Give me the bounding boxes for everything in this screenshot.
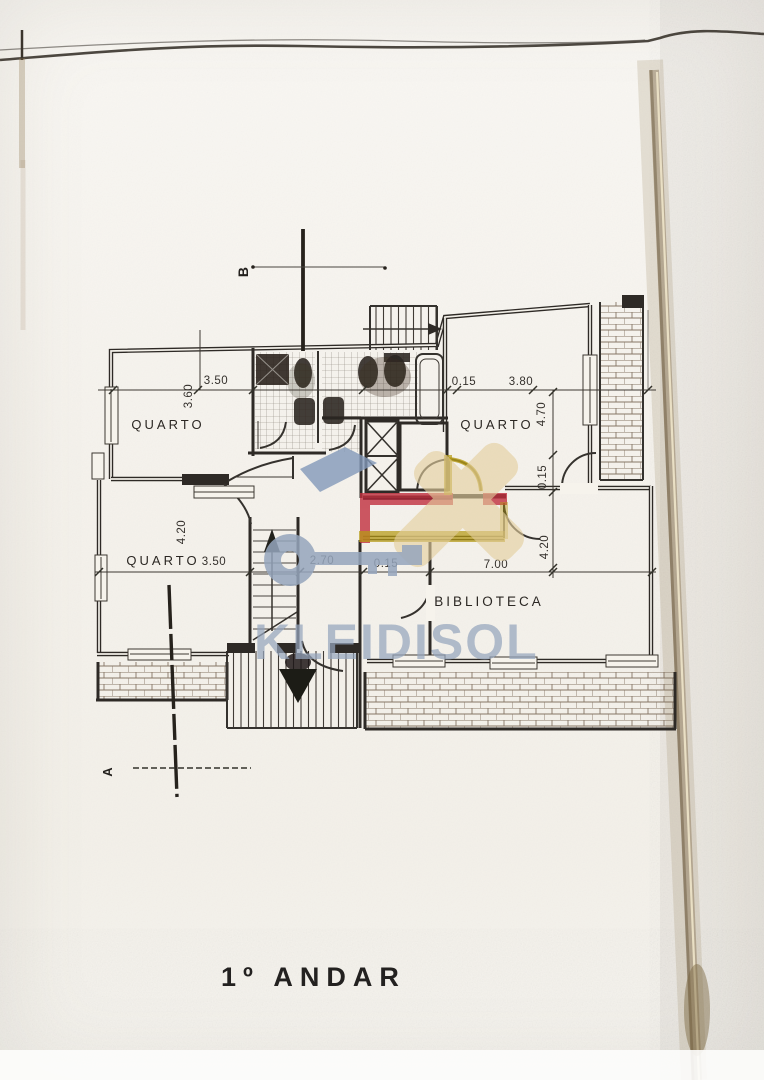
dim-mid-width-biblioteca: 7.00 [484, 559, 508, 571]
watermark-text: KLEIDISOL [254, 614, 539, 670]
masonry-wall-chunk [182, 474, 229, 485]
right-balcony-brick [600, 302, 643, 480]
dim-top-depth-left: 3.60 [183, 384, 195, 408]
dim-left-depth: 4.20 [176, 520, 188, 544]
dim-mid-width-left: 3.50 [202, 556, 226, 568]
scanned-floor-plan-page: QUARTO QUARTO QUARTO BIBLIOTECA 3.50 3.6… [0, 0, 764, 1080]
floor-plan-drawing: QUARTO QUARTO QUARTO BIBLIOTECA 3.50 3.6… [0, 0, 764, 1080]
dim-right-depth-bottom: 4.20 [539, 535, 551, 559]
section-marker-a-label: A [100, 767, 115, 777]
room-label-quarto-top-right: QUARTO [460, 417, 533, 432]
dim-right-wall: 0.15 [537, 465, 549, 489]
dim-right-depth-top: 4.70 [536, 402, 548, 426]
floor-caption: 1º ANDAR [221, 962, 406, 992]
dim-top-width-left: 3.50 [204, 375, 228, 387]
bottom-white-band [0, 1050, 764, 1080]
section-marker-b-label: B [235, 267, 251, 277]
room-label-biblioteca: BIBLIOTECA [434, 594, 544, 609]
bottom-mottle [0, 940, 700, 1052]
dim-top-wall: 0.15 [452, 376, 476, 388]
sink-2 [323, 397, 344, 424]
left-balcony-brick [98, 662, 227, 700]
bottom-balcony-brick [365, 672, 675, 728]
room-label-quarto-top-left: QUARTO [131, 417, 204, 432]
sink [294, 398, 315, 425]
room-label-quarto-middle-left: QUARTO [126, 553, 199, 568]
dim-top-width-right: 3.80 [509, 376, 533, 388]
